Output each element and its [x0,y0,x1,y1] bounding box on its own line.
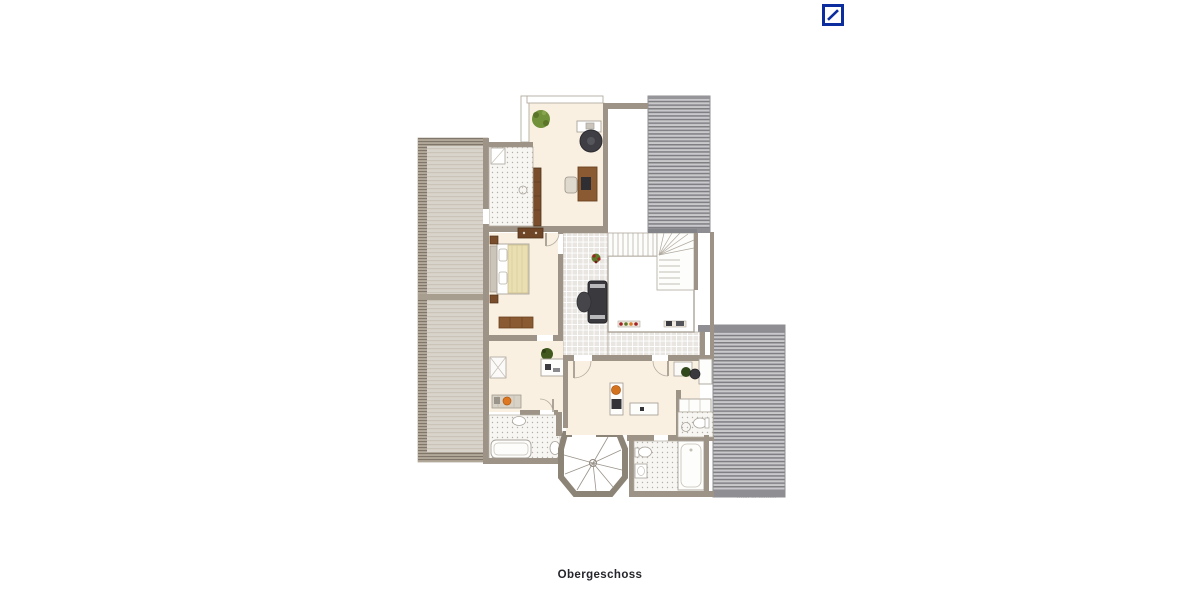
desk-alcove [674,362,692,377]
bench [499,317,533,328]
bed [490,244,529,294]
plant [541,348,553,360]
sideboard [492,395,521,408]
bathroom-top-left [483,142,533,226]
table [541,359,565,376]
office-chair [580,130,602,152]
wardrobe [533,168,541,226]
stair-handrail [648,229,697,233]
plant [532,110,550,128]
plan-caption: Obergeschoss [0,569,1200,581]
bathroom-right [678,399,713,437]
bathroom-lower-left [483,412,563,464]
stair-spiral [561,430,625,494]
bathroom-bottom-right [629,435,714,497]
roof-left [418,138,489,462]
decor-items [664,321,686,327]
page: Obergeschoss ······· ··· ·········· [0,0,1200,600]
floor-plan [0,0,1200,600]
shelf [490,357,506,378]
flower-box [618,321,640,327]
roof-top-right [648,96,710,233]
dresser [518,228,543,238]
plan-watermark: ······· ··· ·········· [737,496,787,500]
